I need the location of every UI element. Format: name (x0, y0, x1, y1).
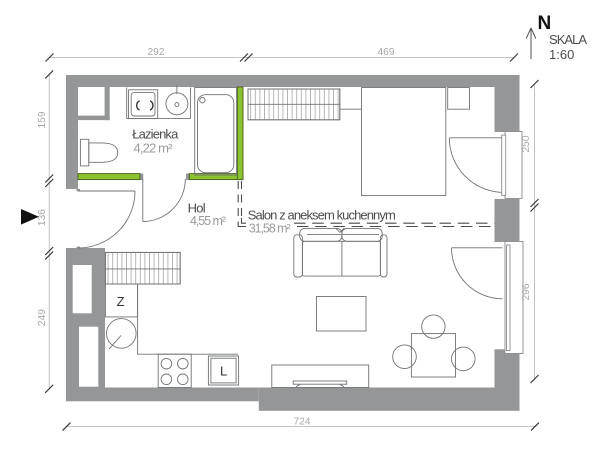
svg-text:724: 724 (294, 417, 311, 428)
svg-text:Z: Z (117, 294, 125, 309)
svg-text:L: L (220, 363, 227, 378)
svg-text:Łazienka: Łazienka (132, 126, 179, 141)
svg-text:31,58 m²: 31,58 m² (249, 222, 291, 236)
svg-text:4,22 m²: 4,22 m² (134, 140, 174, 155)
svg-text:SKALA: SKALA (549, 32, 587, 47)
svg-text:292: 292 (148, 47, 165, 58)
svg-text:469: 469 (378, 47, 395, 58)
svg-text:249: 249 (37, 309, 48, 326)
svg-text:136: 136 (37, 209, 48, 226)
svg-text:159: 159 (37, 111, 48, 128)
svg-text:N: N (538, 13, 552, 34)
svg-text:4,55 m²: 4,55 m² (190, 214, 226, 228)
svg-text:250: 250 (521, 135, 532, 152)
svg-text:296: 296 (521, 283, 532, 300)
svg-text:Salon z aneksem kuchennym: Salon z aneksem kuchennym (248, 208, 396, 223)
svg-text:1:60: 1:60 (549, 47, 574, 62)
